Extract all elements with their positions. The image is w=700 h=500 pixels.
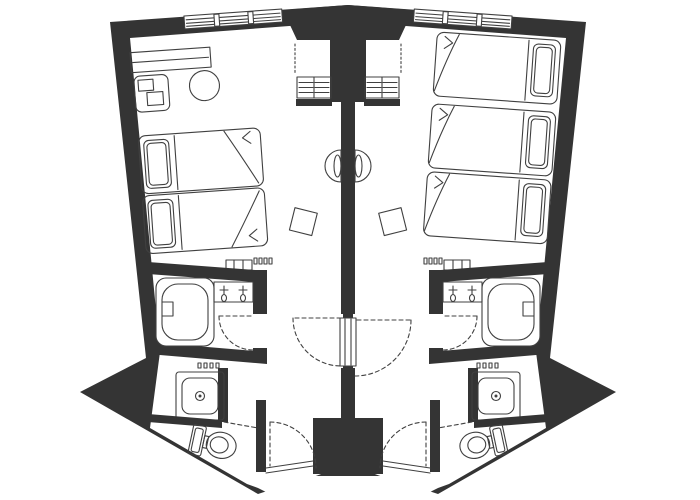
entry-jamb-wall <box>256 400 266 472</box>
central-wall-lower <box>341 368 355 418</box>
shower-drain-dot <box>199 395 202 398</box>
bathtub <box>156 278 214 346</box>
entry-block-wall <box>313 418 383 474</box>
shower-right-wall <box>218 368 228 422</box>
connecting-door-panel <box>340 318 356 366</box>
window-mullion <box>214 14 220 26</box>
floor-plan-svg <box>0 0 700 500</box>
bathroom-right-wall-upper <box>253 270 267 314</box>
central-wall-upper <box>341 102 355 314</box>
wedge-stem-wall <box>330 40 366 102</box>
floor-plan-page <box>0 0 700 500</box>
top-service-wedge <box>283 5 413 40</box>
closet-base-wall <box>296 99 332 106</box>
window-mullion <box>248 12 254 24</box>
